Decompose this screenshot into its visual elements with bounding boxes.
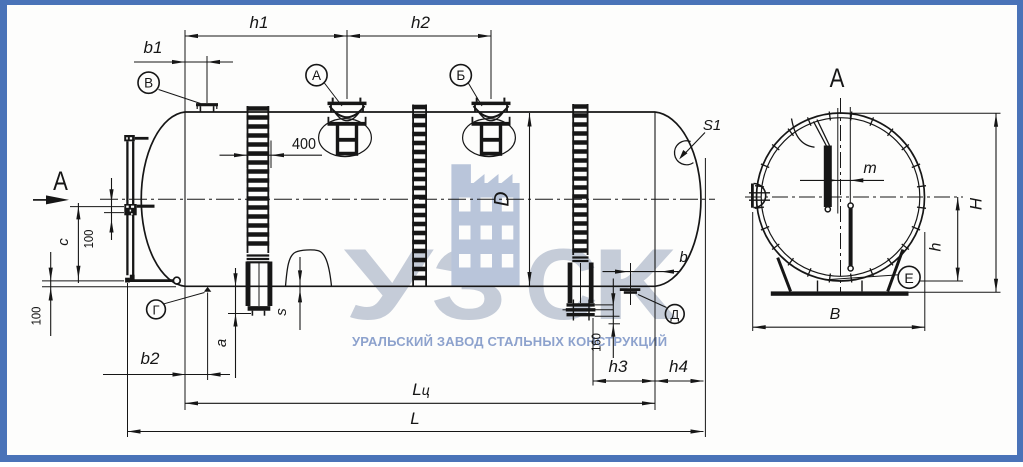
svg-text:D: D bbox=[491, 191, 514, 206]
svg-text:400: 400 bbox=[292, 135, 316, 153]
svg-text:c: c bbox=[55, 238, 72, 246]
svg-text:100: 100 bbox=[81, 229, 96, 248]
svg-text:B: B bbox=[830, 306, 841, 323]
svg-text:h3: h3 bbox=[609, 357, 628, 376]
svg-text:a: a bbox=[213, 339, 230, 347]
svg-text:b: b bbox=[679, 249, 687, 266]
svg-text:s: s bbox=[273, 308, 290, 316]
svg-text:Lц: Lц bbox=[412, 380, 429, 399]
svg-text:S1: S1 bbox=[703, 117, 721, 134]
svg-text:b2: b2 bbox=[141, 349, 160, 368]
svg-text:В: В bbox=[144, 76, 153, 91]
svg-text:Г: Г bbox=[152, 302, 159, 317]
svg-text:L: L bbox=[410, 409, 419, 428]
svg-text:h: h bbox=[928, 242, 945, 251]
svg-text:H: H bbox=[967, 197, 986, 210]
svg-text:Д: Д bbox=[670, 307, 679, 322]
svg-text:h2: h2 bbox=[411, 13, 430, 32]
svg-text:А: А bbox=[53, 167, 68, 197]
svg-text:Б: Б bbox=[456, 68, 465, 83]
svg-text:УРАЛЬСКИЙ ЗАВОД СТАЛЬНЫХ КОНСТ: УРАЛЬСКИЙ ЗАВОД СТАЛЬНЫХ КОНСТРУКЦИЙ bbox=[352, 334, 667, 349]
svg-text:Е: Е bbox=[904, 270, 913, 286]
svg-text:160: 160 bbox=[589, 333, 604, 352]
svg-text:А: А bbox=[830, 64, 845, 94]
svg-text:100: 100 bbox=[29, 306, 44, 325]
svg-text:h1: h1 bbox=[250, 13, 269, 32]
svg-text:А: А bbox=[312, 68, 321, 83]
svg-text:b1: b1 bbox=[144, 38, 163, 57]
svg-text:У: У bbox=[344, 228, 434, 341]
svg-text:m: m bbox=[863, 160, 876, 177]
svg-text:h4: h4 bbox=[669, 357, 688, 376]
